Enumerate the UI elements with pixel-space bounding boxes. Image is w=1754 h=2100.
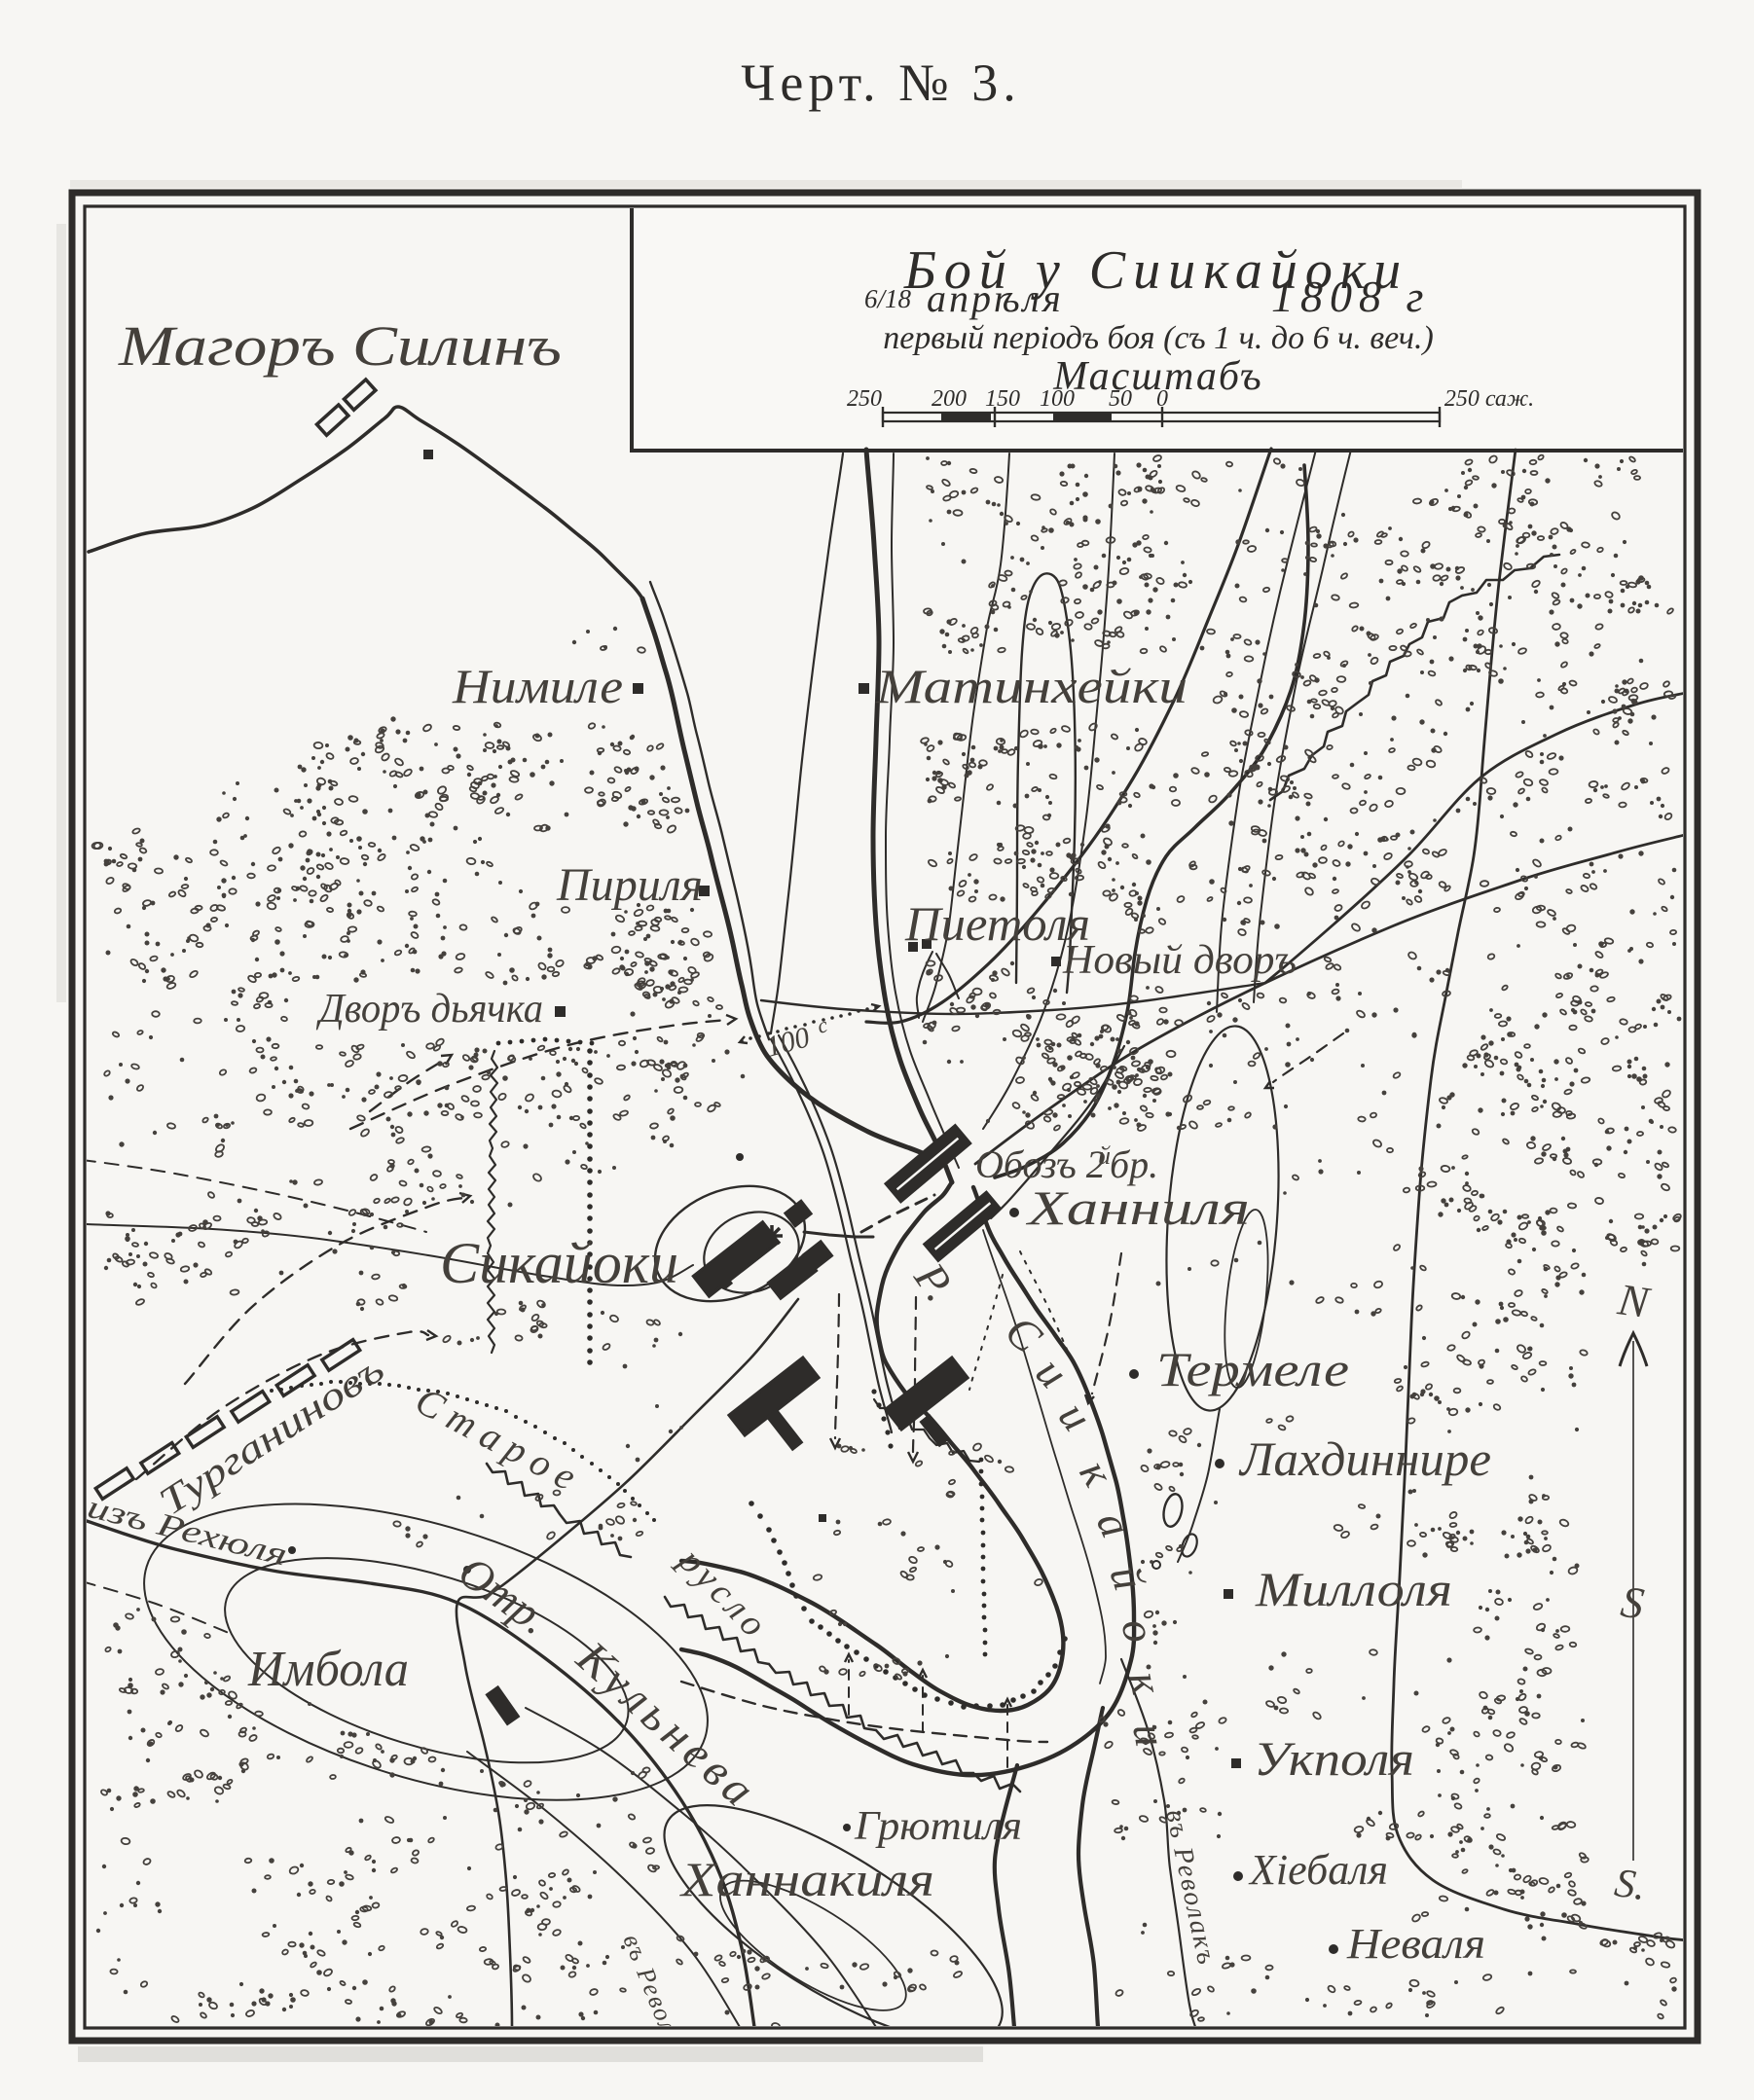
svg-text:Грютиля: Грютиля	[854, 1804, 1022, 1849]
svg-text:первый періодъ боя (съ 1 ч. д: первый періодъ боя (съ 1 ч. до 6 ч. веч.…	[883, 320, 1434, 356]
svg-text:50: 50	[1109, 386, 1132, 412]
svg-text:Имбола: Имбола	[247, 1642, 409, 1697]
svg-text:Пириля: Пириля	[556, 859, 703, 911]
svg-text:Миллоля: Миллоля	[1255, 1562, 1452, 1616]
svg-text:1808 г: 1808 г	[1271, 272, 1430, 321]
svg-text:Укполя: Укполя	[1254, 1731, 1414, 1786]
svg-text:Дворъ дьячка: Дворъ дьячка	[315, 987, 543, 1032]
svg-text:Новый дворъ: Новый дворъ	[1062, 938, 1297, 983]
svg-text:100: 100	[1040, 386, 1075, 412]
svg-text:Нимиле: Нимиле	[452, 659, 623, 713]
svg-text:Термеле: Термеле	[1156, 1342, 1349, 1396]
svg-text:S.: S.	[1612, 1861, 1649, 1909]
svg-text:250: 250	[847, 386, 882, 412]
svg-text:Черт. № 3.: Черт. № 3.	[741, 54, 1020, 112]
svg-text:Неваля: Неваля	[1346, 1920, 1485, 1968]
svg-text:250 саж.: 250 саж.	[1444, 386, 1534, 412]
svg-text:Магоръ Силинъ: Магоръ Силинъ	[118, 314, 562, 378]
svg-text:Лахдиннире: Лахдиннире	[1238, 1431, 1491, 1486]
svg-text:6/18: 6/18	[864, 284, 912, 313]
svg-text:апрѣля: апрѣля	[927, 276, 1064, 320]
svg-text:200: 200	[932, 386, 967, 412]
svg-text:Матинхейки: Матинхейки	[875, 659, 1188, 713]
svg-text:Ханнакиля: Ханнакиля	[679, 1852, 934, 1906]
svg-text:Ханниля: Ханниля	[1025, 1180, 1250, 1235]
svg-text:Хіебаля: Хіебаля	[1248, 1846, 1388, 1894]
svg-text:150: 150	[985, 386, 1020, 412]
svg-text:Сикайоки: Сикайоки	[440, 1231, 678, 1295]
